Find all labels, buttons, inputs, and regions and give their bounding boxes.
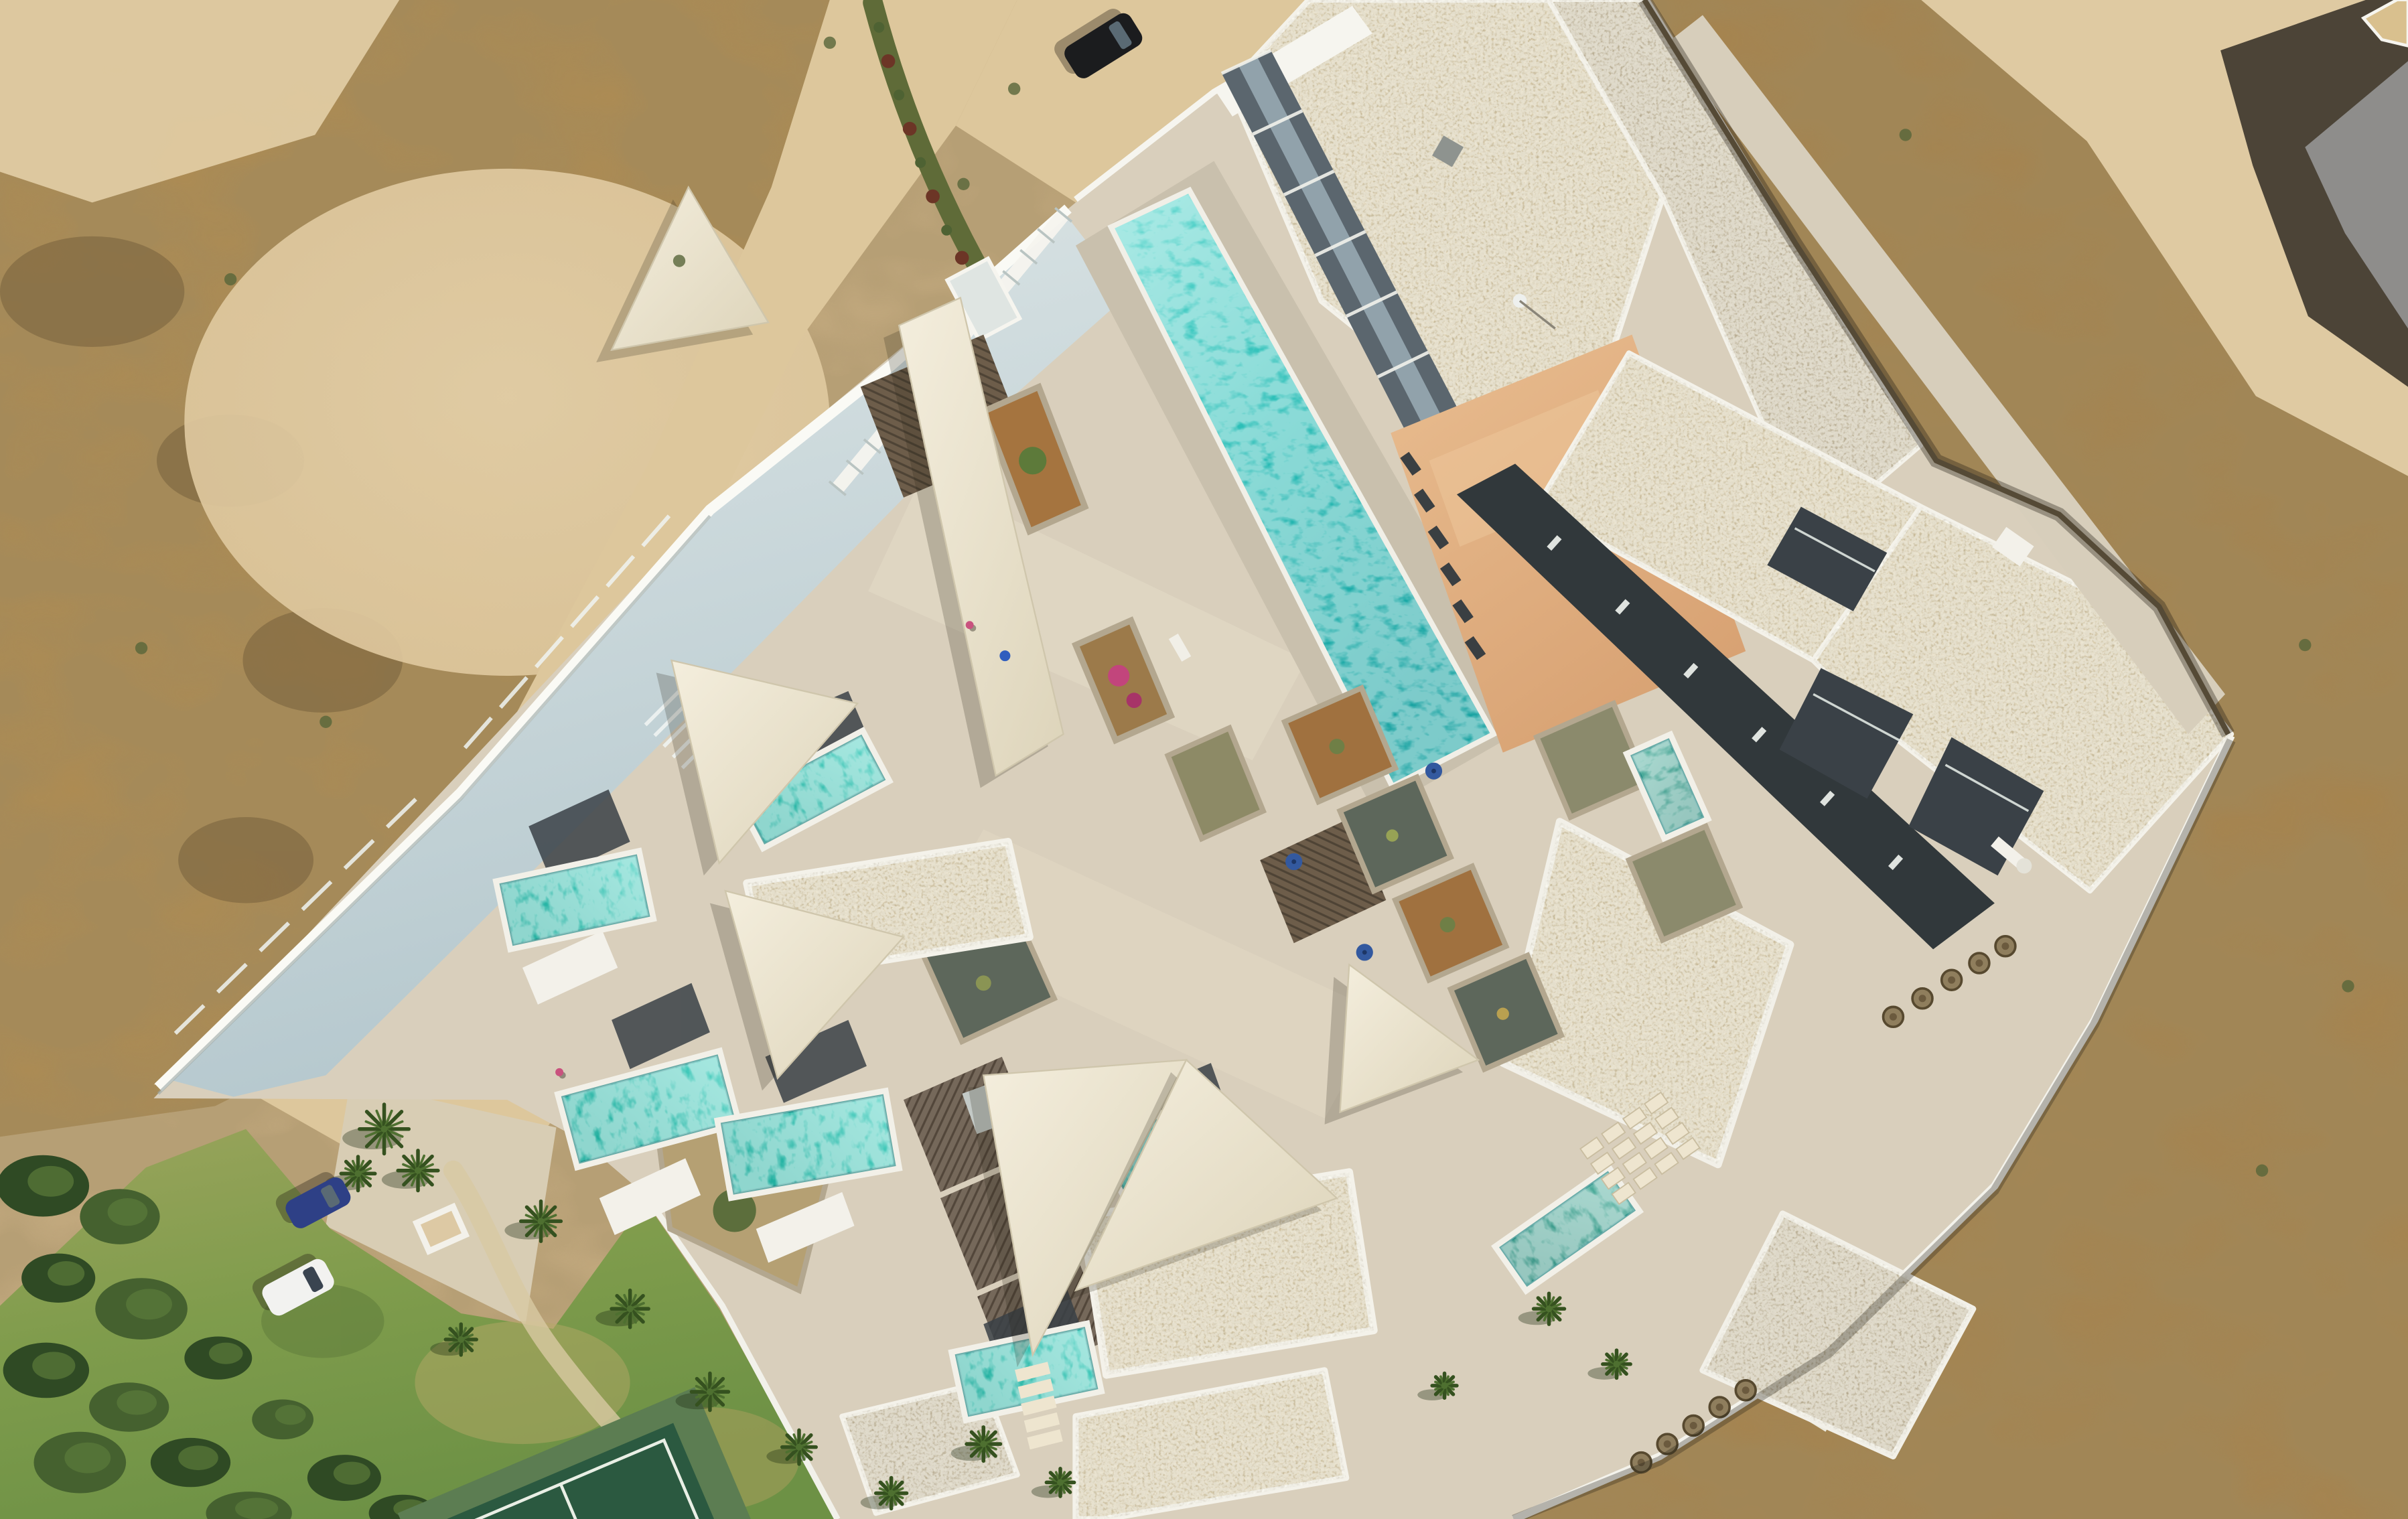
aerial-photo-stage xyxy=(0,0,2408,1519)
umbrella-pole xyxy=(1362,950,1367,954)
person xyxy=(555,1068,563,1076)
scrub-tuft xyxy=(2342,980,2354,992)
hedge-flowers xyxy=(881,54,896,68)
shrub-highlight xyxy=(334,1461,370,1484)
hedge-flowers xyxy=(894,90,904,100)
palm-crown xyxy=(980,1441,987,1447)
palm-crown xyxy=(1441,1382,1447,1389)
shrub-highlight xyxy=(235,1498,278,1519)
rock-blob xyxy=(0,236,184,347)
stone-circle-core xyxy=(1975,959,1983,966)
succulent xyxy=(976,975,991,991)
palm-crown xyxy=(538,1218,545,1224)
shrub-highlight xyxy=(48,1261,84,1286)
palm-crown xyxy=(415,1167,421,1174)
palm-crown xyxy=(354,1170,361,1177)
succulent xyxy=(1386,829,1398,841)
palm-crown xyxy=(1545,1305,1552,1312)
stone-circle-core xyxy=(1716,1403,1723,1410)
stone-circle-core xyxy=(1690,1422,1697,1429)
stone-circle-core xyxy=(1948,976,1955,984)
scrub-tuft xyxy=(320,716,332,728)
palm-crown xyxy=(796,1444,802,1451)
stone-circle-core xyxy=(1742,1386,1750,1394)
umbrella-pole xyxy=(1431,769,1436,774)
scrub-tuft xyxy=(824,37,836,49)
scrub-tuft xyxy=(135,642,147,654)
palm-crown xyxy=(1057,1479,1064,1486)
scrub-tuft xyxy=(1008,82,1020,94)
hedge-flowers xyxy=(873,22,884,33)
rock-blob xyxy=(178,817,313,903)
stone-circle-core xyxy=(1890,1013,1897,1021)
scrub-tuft xyxy=(957,178,969,190)
planter-shrub xyxy=(1019,447,1046,474)
scrub-tuft xyxy=(224,273,236,285)
bougainvillea-pink xyxy=(1127,693,1142,708)
shrub-highlight xyxy=(117,1390,157,1415)
shrub-highlight xyxy=(178,1445,218,1470)
shrub-highlight xyxy=(126,1289,172,1319)
succulent xyxy=(1440,917,1456,932)
succulent xyxy=(1329,739,1344,754)
scrub-tuft xyxy=(1900,129,1912,141)
scrub-tuft xyxy=(673,255,685,267)
shrub-highlight xyxy=(27,1166,74,1197)
palm-crown xyxy=(381,1126,388,1133)
palm-crown xyxy=(457,1336,464,1343)
hedge-flowers xyxy=(955,251,969,265)
umbrella-pole xyxy=(1291,859,1296,864)
stone-circle-core xyxy=(2001,942,2009,950)
hedge-flowers xyxy=(915,157,926,168)
aerial-resort-scene xyxy=(0,0,2408,1519)
stone-circle-core xyxy=(1664,1441,1671,1448)
hedge-flowers xyxy=(941,225,952,236)
palm-crown xyxy=(707,1388,713,1395)
shrub-highlight xyxy=(64,1443,111,1473)
shrub-highlight xyxy=(108,1198,148,1226)
succulent xyxy=(1497,1008,1509,1020)
shrub-highlight xyxy=(275,1405,306,1425)
hedge-flowers xyxy=(926,190,940,204)
scrub-tuft xyxy=(2256,1165,2268,1177)
bougainvillea-pink xyxy=(1108,665,1129,686)
person xyxy=(966,621,974,629)
palm-crown xyxy=(1613,1361,1620,1368)
hedge-flowers xyxy=(903,122,917,136)
shrub-highlight xyxy=(209,1343,242,1364)
palm-crown xyxy=(888,1490,895,1496)
pool-float xyxy=(999,650,1010,661)
shrub-highlight xyxy=(32,1352,75,1379)
palm-crown xyxy=(627,1305,634,1312)
stone-circle-core xyxy=(1919,995,1926,1002)
scrub-tuft xyxy=(2299,639,2311,651)
